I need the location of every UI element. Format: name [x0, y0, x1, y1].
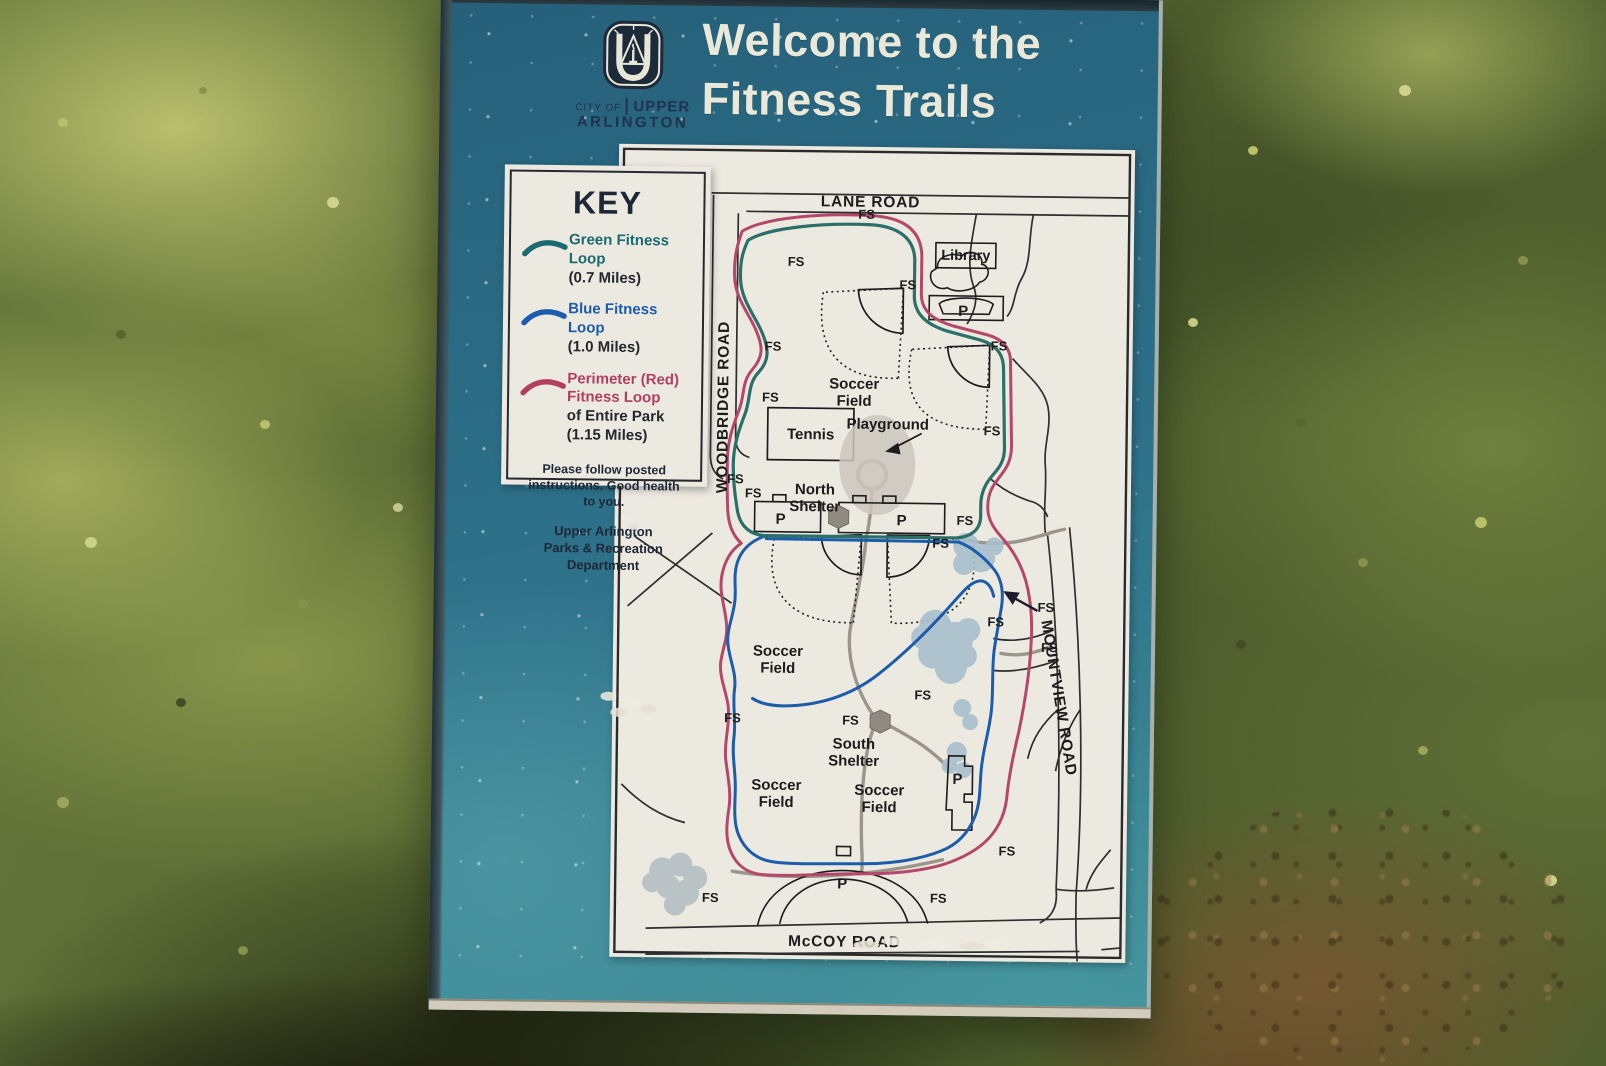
sign-frame-top	[441, 0, 1163, 11]
blue-trail-swoosh-icon	[520, 300, 568, 329]
sign-title-line2: Fitness Trails	[701, 69, 1040, 132]
parking-label: P	[952, 771, 962, 788]
svg-text:Soccer: Soccer	[854, 782, 904, 800]
parking-label: P	[958, 303, 968, 320]
fs-marker: FS	[991, 338, 1008, 353]
dirt-patch-texture	[1150, 800, 1580, 1066]
key-green-miles: (0.7 Miles)	[568, 269, 694, 289]
key-item-blue: Blue Fitness Loop (1.0 Miles)	[520, 300, 695, 358]
sign-frame-bottom	[429, 999, 1151, 1019]
fs-marker: FS	[702, 890, 719, 905]
sign-title: Welcome to the Fitness Trails	[701, 11, 1041, 132]
sign-title-line1: Welcome to the	[702, 11, 1041, 74]
key-green-label: Green Fitness Loop	[569, 231, 695, 270]
svg-text:Field: Field	[760, 660, 795, 677]
svg-text:Shelter: Shelter	[789, 498, 840, 516]
key-red-detail-line1: of Entire Park	[567, 407, 679, 427]
city-upper-text: UPPER	[625, 98, 690, 116]
fs-marker: FS	[1037, 600, 1054, 615]
paint-scratch	[621, 514, 631, 520]
south-shelter-icon	[870, 710, 890, 733]
fs-marker: FS	[842, 713, 859, 728]
svg-text:South: South	[833, 735, 876, 753]
parking-label: P	[896, 512, 906, 529]
key-blue-label: Blue Fitness Loop	[568, 300, 694, 339]
key-item-green: Green Fitness Loop (0.7 Miles)	[520, 231, 695, 289]
key-blue-miles: (1.0 Miles)	[568, 338, 694, 358]
fs-marker: FS	[1041, 640, 1058, 655]
svg-text:Field: Field	[836, 392, 871, 409]
paint-scratch	[881, 937, 907, 945]
park-photo: CITY OFUPPER ARLINGTON Welcome to the Fi…	[0, 0, 1606, 1066]
playground-label: Playground	[846, 416, 929, 434]
key-note: Please follow posted instructions. Good …	[516, 460, 693, 511]
soccer-field-label-lower-left: Soccer Field	[751, 776, 802, 811]
svg-text:Field: Field	[759, 794, 794, 811]
fs-marker: FS	[765, 339, 782, 354]
grass-leaf-speckles	[0, 0, 6, 5]
key-red-label-line2: Fitness Loop	[567, 388, 679, 408]
north-shelter-label: North Shelter	[789, 481, 840, 516]
fs-marker: FS	[745, 485, 762, 500]
green-trail-swoosh-icon	[521, 231, 569, 260]
svg-text:North: North	[795, 481, 835, 498]
fs-marker: FS	[984, 423, 1001, 438]
svg-text:Field: Field	[861, 799, 896, 816]
paint-scratch	[600, 692, 616, 701]
trees-bottom-left	[642, 852, 708, 916]
svg-text:Soccer: Soccer	[751, 776, 801, 794]
fs-marker: FS	[899, 277, 916, 292]
city-logo-text: CITY OFUPPER ARLINGTON	[557, 98, 707, 131]
fitness-trails-sign-board: CITY OFUPPER ARLINGTON Welcome to the Fi…	[429, 0, 1163, 1018]
fs-marker: FS	[987, 614, 1004, 629]
svg-text:Soccer: Soccer	[753, 642, 803, 660]
sign-frame-left	[429, 0, 454, 1010]
fs-marker: FS	[914, 687, 931, 702]
key-red-label-line1: Perimeter (Red)	[567, 370, 679, 390]
soccer-field-label-upper: Soccer Field	[829, 375, 880, 410]
fs-marker: FS	[858, 207, 875, 222]
fs-marker: FS	[998, 843, 1015, 858]
city-arlington-text: ARLINGTON	[557, 114, 707, 132]
fs-marker: FS	[727, 471, 744, 486]
soccer-field-label-mid: Soccer Field	[753, 642, 804, 677]
key-department: Upper Arlington Parks & Recreation Depar…	[515, 523, 692, 576]
fs-marker: FS	[762, 390, 779, 405]
city-logo: CITY OFUPPER ARLINGTON	[557, 19, 708, 131]
parking-lots	[750, 240, 1004, 928]
fs-marker: FS	[930, 891, 947, 906]
trees	[909, 532, 1003, 778]
parking-label: P	[837, 875, 847, 892]
key-inner: KEY Green Fitness Loop (0.7 Miles)	[506, 169, 706, 481]
city-of-text: CITY OF	[575, 102, 621, 114]
soccer-field-label-lower-mid: Soccer Field	[854, 782, 905, 817]
svg-text:Shelter: Shelter	[828, 752, 879, 770]
svg-text:Soccer: Soccer	[829, 375, 879, 393]
key-panel: KEY Green Fitness Loop (0.7 Miles)	[501, 164, 711, 486]
key-heading: KEY	[519, 184, 695, 223]
parking-label: P	[775, 511, 785, 528]
fs-marker: FS	[788, 254, 805, 269]
woodbridge-road-label: WOODBRIDGE ROAD	[714, 321, 733, 493]
fs-pointer-arrow	[1006, 593, 1038, 611]
city-logo-emblem-icon	[602, 20, 665, 91]
key-red-detail-line2: (1.15 Miles)	[567, 426, 679, 446]
fs-marker: FS	[724, 710, 741, 725]
sign-frame-right	[1147, 0, 1163, 1018]
fs-marker: FS	[957, 513, 974, 528]
red-trail-swoosh-icon	[519, 369, 567, 398]
tennis-label: Tennis	[787, 426, 834, 444]
library-label: Library	[941, 248, 990, 265]
south-shelter-label: South Shelter	[828, 735, 879, 770]
fs-marker: FS	[932, 536, 949, 551]
key-item-red: Perimeter (Red) Fitness Loop of Entire P…	[519, 369, 694, 446]
